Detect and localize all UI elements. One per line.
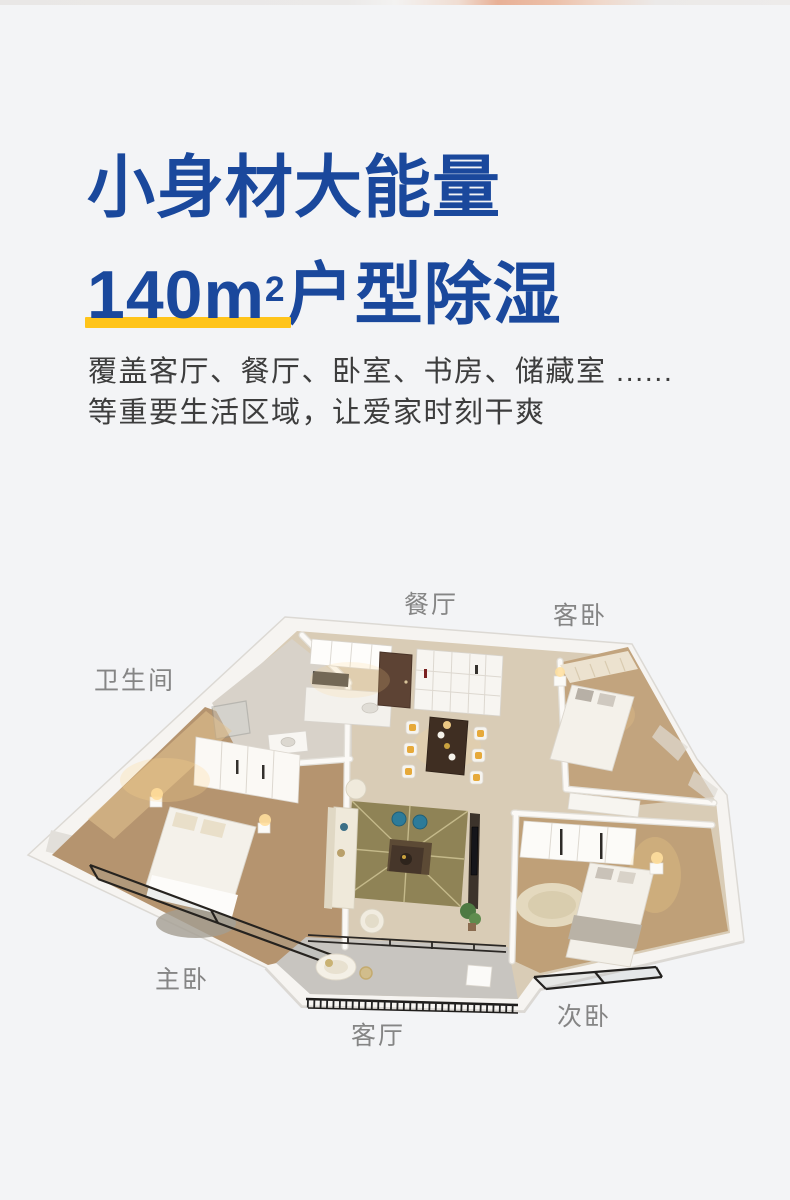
tv-screen [471,827,478,875]
armchair [346,779,366,799]
pillow [617,871,636,884]
throw-pillow [340,823,348,831]
room-label-dining: 餐厅 [404,585,458,621]
hero-title-line1: 小身材大能量 [87,138,562,239]
bedside-lamp [555,667,565,677]
wash-basin [281,738,295,747]
display-shelf [414,649,503,716]
floor-plan-svg [0,575,790,1055]
room-label-guest-bedroom: 客卧 [553,596,607,632]
lounge-pillow [325,959,333,967]
teal-ottoman [392,812,406,826]
room-label-master-bedroom: 主卧 [155,960,209,996]
throw-pillow [337,849,345,857]
plant-pot [468,923,476,931]
bedside-lamp [259,814,271,826]
pillow [595,867,614,880]
hero-title-line2-rest: 户型除湿 [286,257,562,333]
hero-title-line2: 140m2户型除湿 [87,239,562,346]
door-handle [404,680,407,683]
table-centerpiece [444,743,450,749]
nightstand [650,863,663,874]
kitchen-sink [362,703,378,713]
room-label-living-room: 客厅 [351,1016,405,1052]
highlighted-area-value: 140m2 [87,257,286,333]
nightstand [554,676,566,686]
superscript-2: 2 [265,270,286,309]
hero-title: 小身材大能量 140m2户型除湿 [87,138,562,346]
floor-plan-3d-render [0,575,790,1055]
storage-box [466,965,492,987]
hero-subtitle-line2: 等重要生活区域，让爱家时刻干爽 [88,393,673,434]
previous-section-edge [0,0,790,5]
bedside-lamp [651,852,663,864]
side-table [360,967,372,979]
hero-subtitle: 覆盖客厅、餐厅、卧室、书房、储藏室 ...... 等重要生活区域，让爱家时刻干爽 [88,352,673,434]
room-label-bathroom: 卫生间 [94,661,175,697]
room-label-second-bedroom: 次卧 [557,997,611,1033]
hero-subtitle-line1: 覆盖客厅、餐厅、卧室、书房、储藏室 ...... [88,352,673,393]
teal-ottoman [413,815,427,829]
